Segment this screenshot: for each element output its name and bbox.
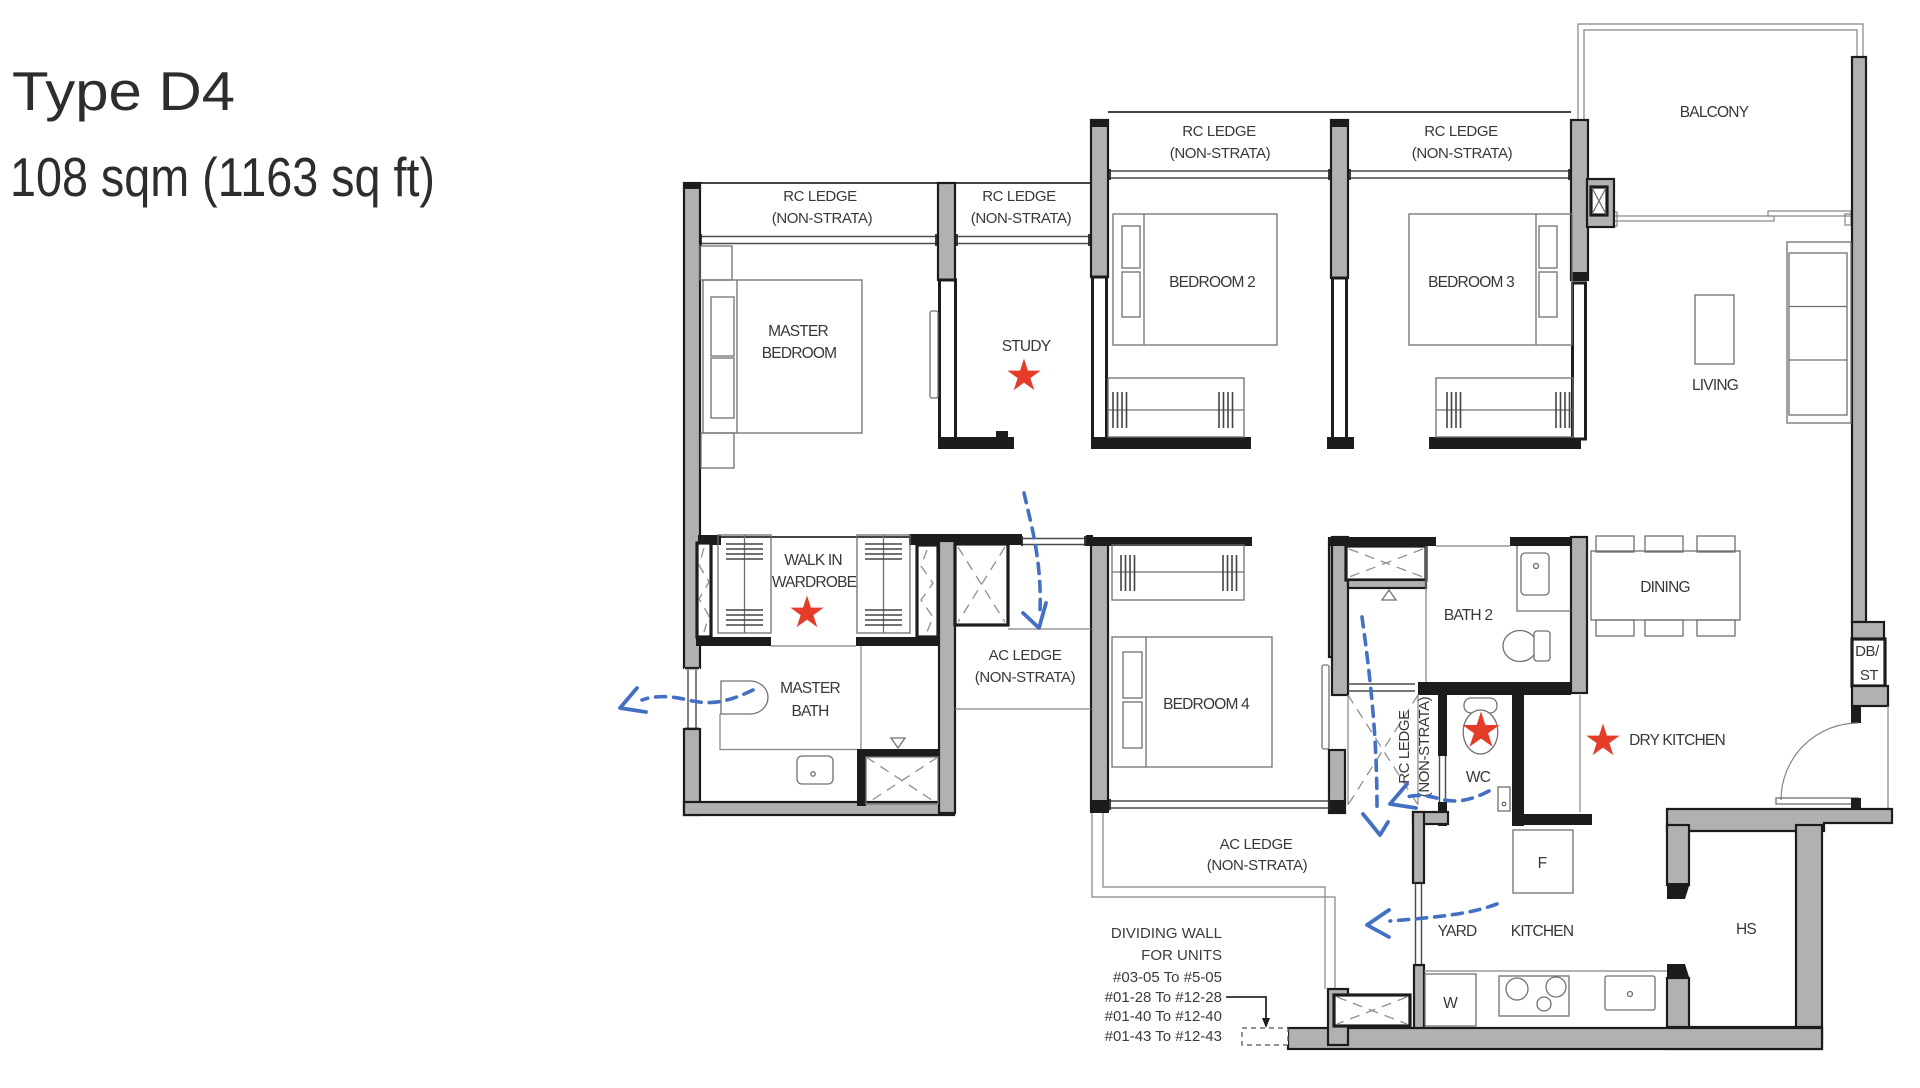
- svg-text:(NON-STRATA): (NON-STRATA): [1207, 857, 1308, 874]
- svg-text:108 sqm (1163 sq ft): 108 sqm (1163 sq ft): [10, 146, 435, 208]
- svg-text:WARDROBE: WARDROBE: [772, 574, 857, 591]
- svg-text:STUDY: STUDY: [1002, 338, 1051, 355]
- svg-text:AC LEDGE: AC LEDGE: [989, 647, 1062, 664]
- svg-text:(NON-STRATA): (NON-STRATA): [772, 210, 873, 227]
- svg-text:(NON-STRATA): (NON-STRATA): [1170, 145, 1271, 162]
- svg-text:(NON-STRATA): (NON-STRATA): [1416, 696, 1433, 797]
- svg-text:RC LEDGE: RC LEDGE: [1424, 123, 1498, 140]
- svg-text:BATH 2: BATH 2: [1444, 607, 1492, 624]
- svg-text:RC LEDGE: RC LEDGE: [1396, 710, 1413, 784]
- svg-text:AC LEDGE: AC LEDGE: [1220, 836, 1293, 853]
- svg-text:BALCONY: BALCONY: [1680, 104, 1749, 121]
- svg-text:BEDROOM 2: BEDROOM 2: [1169, 274, 1255, 291]
- svg-text:DINING: DINING: [1640, 579, 1689, 596]
- svg-text:#03-05 To #5-05: #03-05 To #5-05: [1113, 969, 1222, 986]
- svg-text:#01-40 To #12-40: #01-40 To #12-40: [1105, 1008, 1222, 1025]
- svg-text:HS: HS: [1736, 921, 1756, 938]
- svg-text:RC LEDGE: RC LEDGE: [1182, 123, 1256, 140]
- svg-text:RC LEDGE: RC LEDGE: [783, 188, 857, 205]
- svg-text:LIVING: LIVING: [1692, 377, 1738, 394]
- svg-text:Type D4: Type D4: [12, 60, 235, 122]
- svg-text:MASTER: MASTER: [768, 323, 828, 340]
- svg-text:KITCHEN: KITCHEN: [1511, 923, 1573, 940]
- svg-text:(NON-STRATA): (NON-STRATA): [975, 669, 1076, 686]
- svg-text:DIVIDING WALL: DIVIDING WALL: [1111, 925, 1222, 942]
- svg-text:ST: ST: [1860, 667, 1879, 684]
- svg-text:W: W: [1443, 995, 1458, 1012]
- svg-text:F: F: [1538, 855, 1547, 872]
- svg-text:RC LEDGE: RC LEDGE: [982, 188, 1056, 205]
- svg-text:DB/: DB/: [1855, 643, 1880, 660]
- svg-text:BEDROOM: BEDROOM: [762, 345, 837, 362]
- svg-text:WALK IN: WALK IN: [784, 552, 842, 569]
- svg-text:BEDROOM 3: BEDROOM 3: [1428, 274, 1514, 291]
- svg-text:BEDROOM 4: BEDROOM 4: [1163, 696, 1250, 713]
- svg-text:#01-43 To #12-43: #01-43 To #12-43: [1105, 1028, 1222, 1045]
- svg-text:DRY KITCHEN: DRY KITCHEN: [1629, 732, 1725, 749]
- svg-text:YARD: YARD: [1438, 923, 1477, 940]
- svg-text:(NON-STRATA): (NON-STRATA): [971, 210, 1072, 227]
- svg-text:(NON-STRATA): (NON-STRATA): [1412, 145, 1513, 162]
- svg-text:#01-28 To #12-28: #01-28 To #12-28: [1105, 989, 1222, 1006]
- svg-text:WC: WC: [1466, 769, 1491, 786]
- svg-text:BATH: BATH: [792, 703, 829, 720]
- svg-text:FOR UNITS: FOR UNITS: [1141, 947, 1222, 964]
- svg-text:MASTER: MASTER: [780, 680, 840, 697]
